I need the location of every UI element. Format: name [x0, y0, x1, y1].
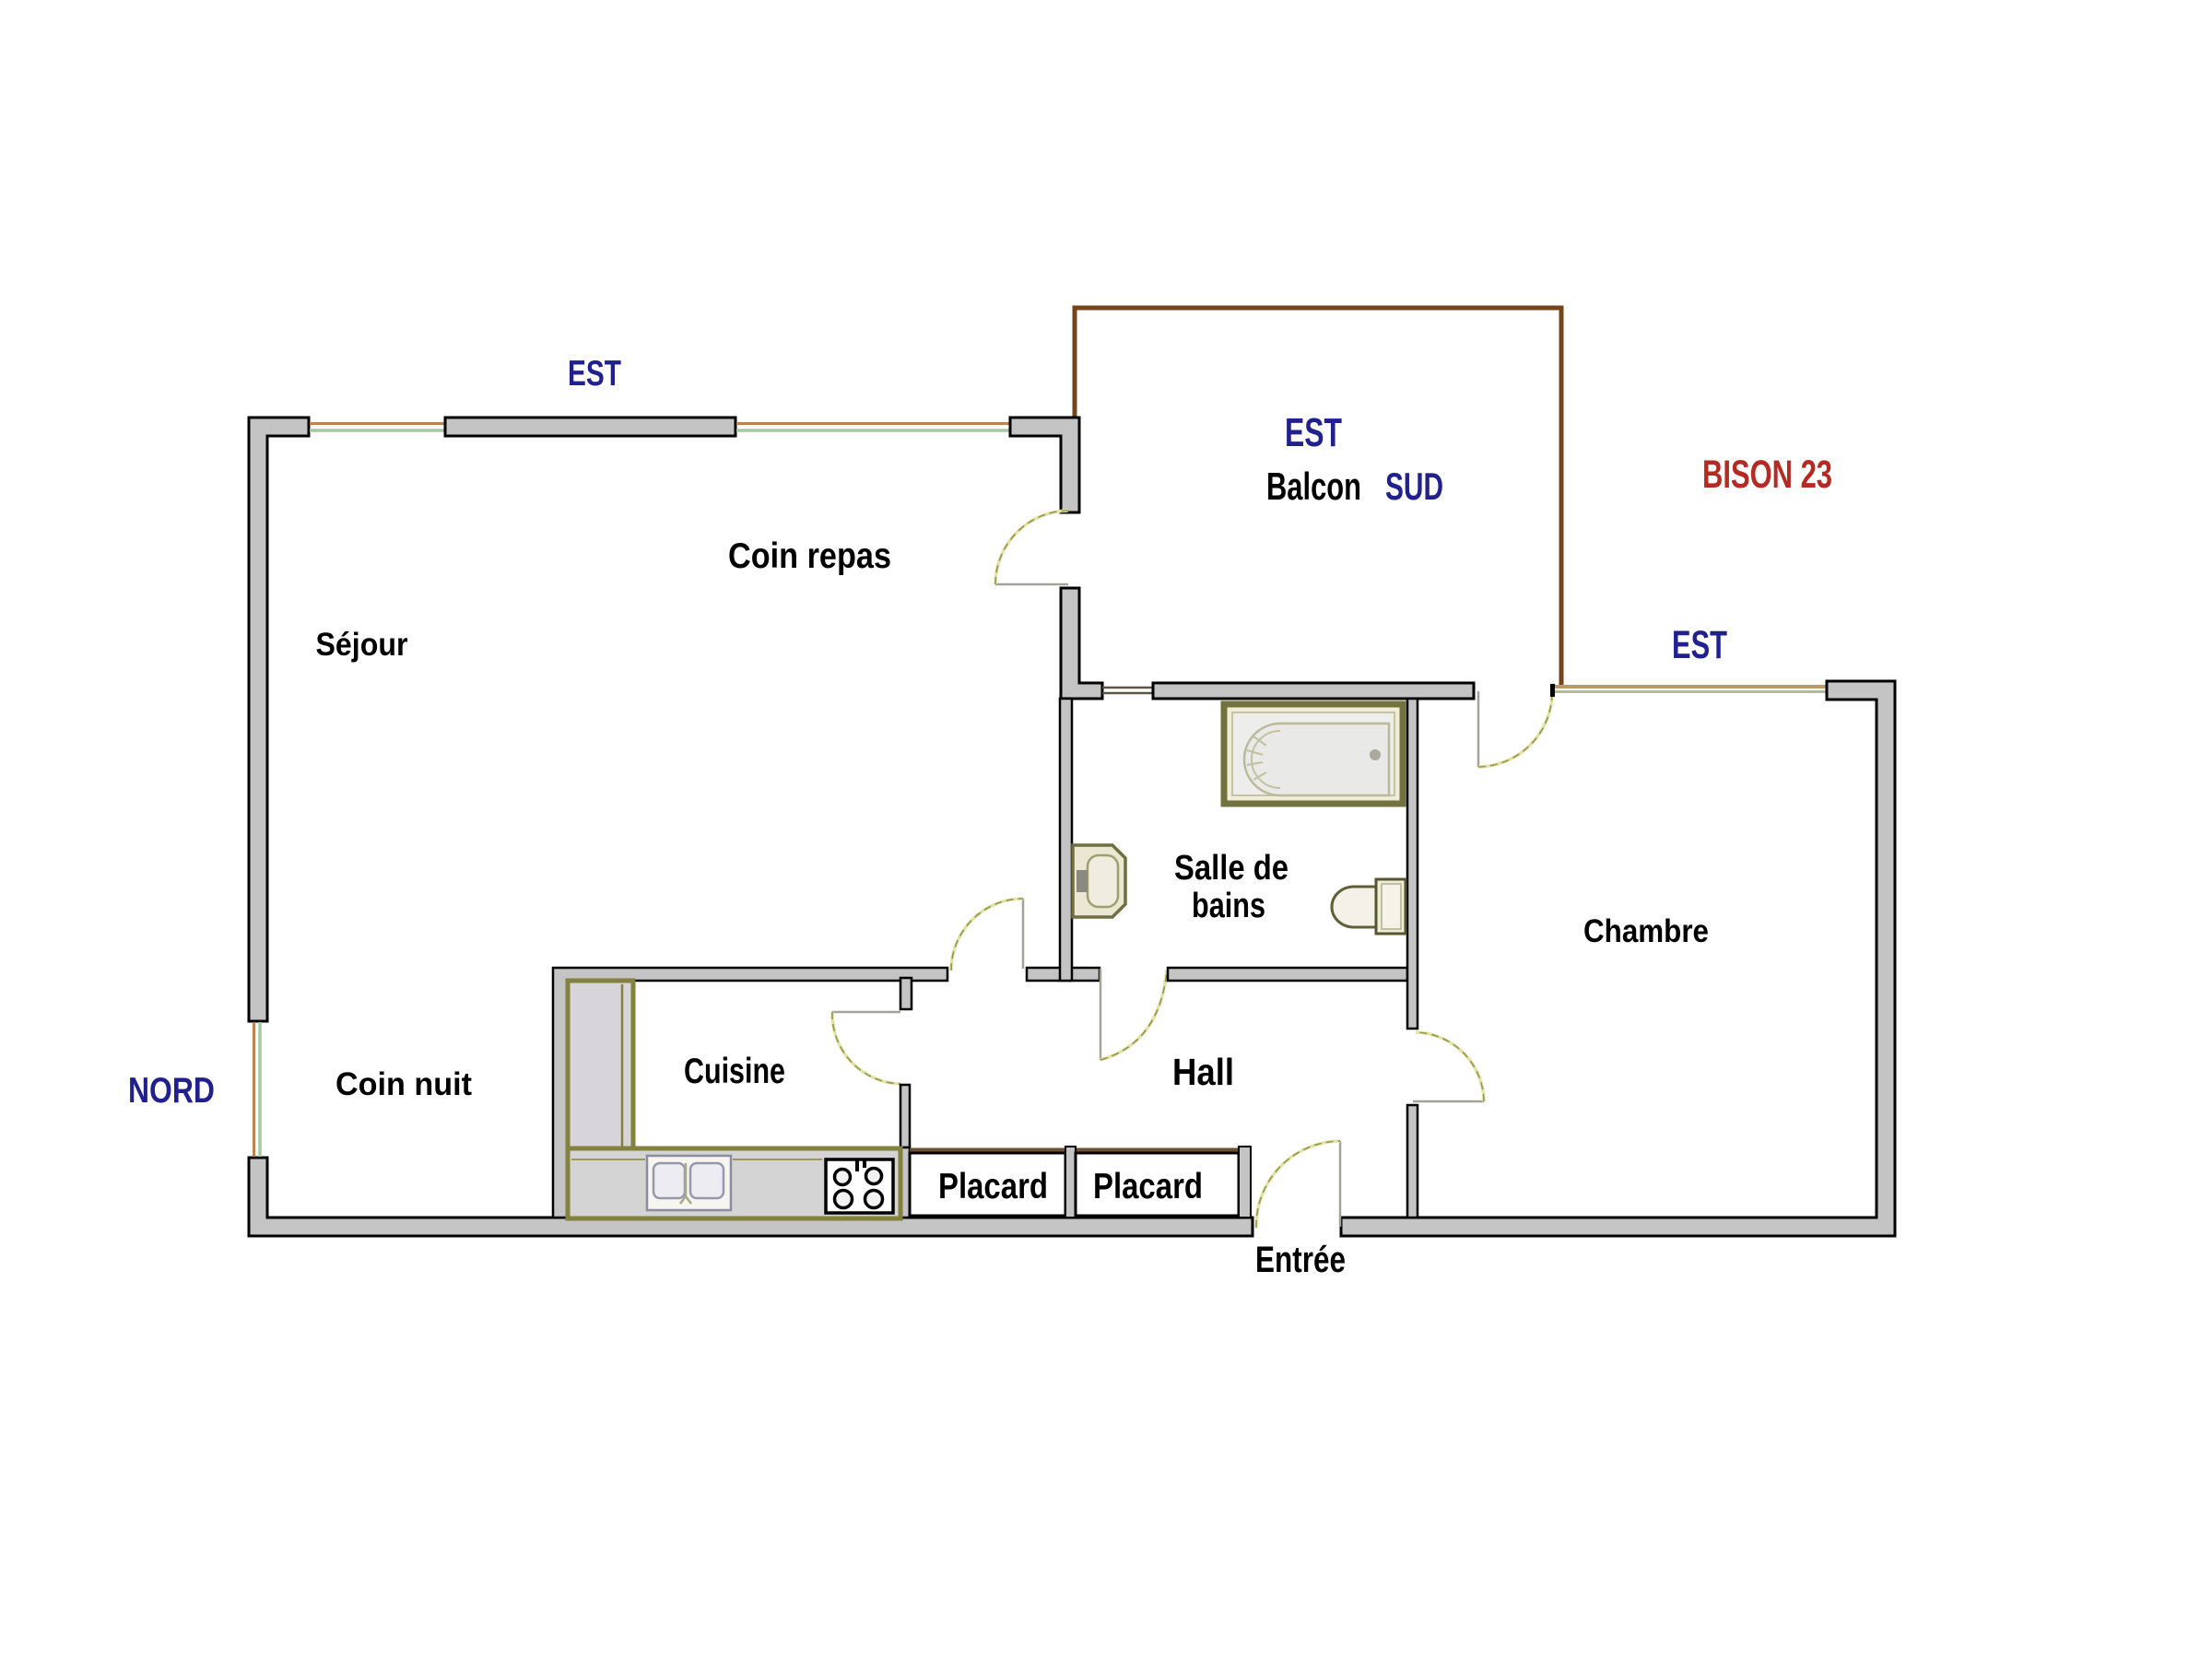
- svg-text:Salle de: Salle de: [1174, 849, 1288, 888]
- svg-text:Coin nuit: Coin nuit: [335, 1066, 472, 1102]
- svg-text:NORD: NORD: [128, 1071, 215, 1111]
- svg-text:SUD: SUD: [1385, 465, 1443, 508]
- svg-text:EST: EST: [1672, 623, 1727, 667]
- svg-text:bains: bains: [1192, 887, 1265, 925]
- svg-text:BISON 23: BISON 23: [1702, 453, 1832, 497]
- svg-text:EST: EST: [1285, 410, 1342, 455]
- svg-text:Séjour: Séjour: [316, 627, 408, 663]
- svg-text:Hall: Hall: [1172, 1051, 1234, 1093]
- svg-text:EST: EST: [568, 354, 621, 394]
- svg-text:Balcon: Balcon: [1266, 465, 1361, 508]
- svg-text:Coin repas: Coin repas: [728, 536, 891, 576]
- svg-text:Chambre: Chambre: [1583, 913, 1709, 949]
- svg-text:Cuisine: Cuisine: [684, 1052, 785, 1091]
- svg-text:Entrée: Entrée: [1255, 1240, 1346, 1280]
- svg-text:Placard: Placard: [938, 1167, 1048, 1206]
- svg-text:Placard: Placard: [1093, 1167, 1203, 1206]
